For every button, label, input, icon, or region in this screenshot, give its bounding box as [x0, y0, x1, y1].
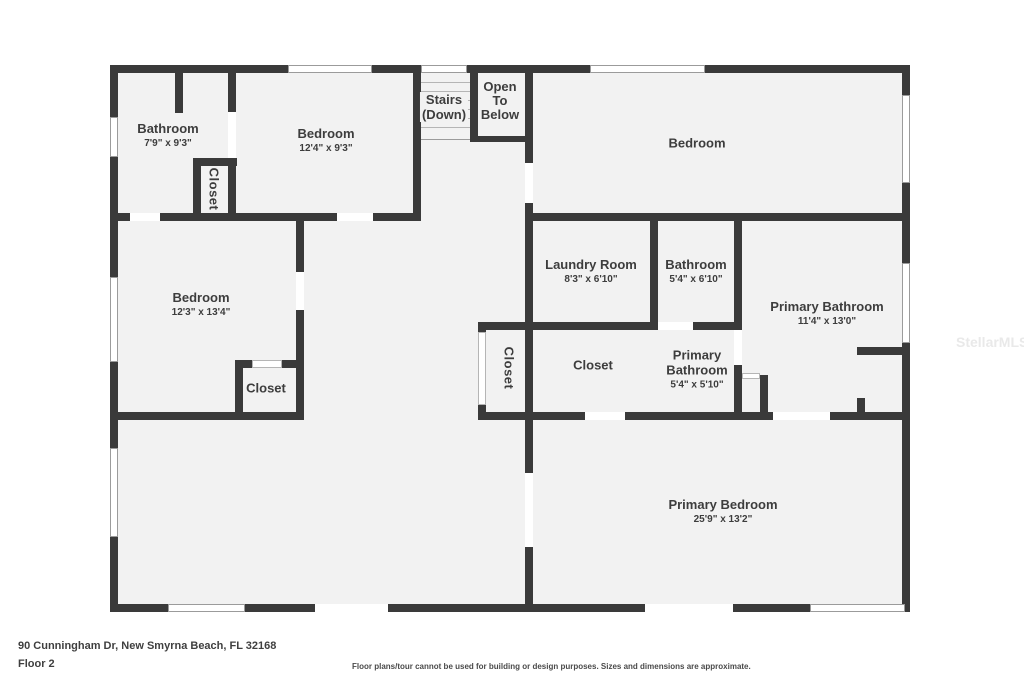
- room-dims: 12'4" x 9'3": [297, 141, 354, 156]
- window: [902, 95, 910, 183]
- room-label-closet-center-vertical: Closet: [502, 347, 517, 390]
- wall: [413, 65, 421, 221]
- door-opening: [130, 213, 160, 221]
- room-label-bedroom-middle-left: Bedroom 12'3" x 13'4": [172, 290, 231, 320]
- room-label-primary-bathroom-small: Primary Bathroom 5'4" x 5'10": [666, 348, 727, 393]
- wall: [470, 65, 478, 142]
- room-label-stairs: Stairs (Down): [420, 92, 468, 122]
- room-name-line2: Bathroom: [666, 363, 727, 378]
- stair-tread: [421, 127, 470, 128]
- door-opening: [228, 112, 236, 158]
- wall: [235, 360, 243, 420]
- door-opening: [658, 322, 693, 330]
- room-dims: 5'4" x 5'10": [666, 378, 727, 393]
- window: [590, 65, 705, 73]
- wall: [857, 347, 910, 355]
- room-label-closet-center: Closet: [573, 358, 613, 373]
- window: [110, 277, 118, 362]
- stair-edge: [421, 139, 470, 140]
- wall: [734, 221, 742, 330]
- floorplan-page: Bathroom 7'9" x 9'3" Closet Bedroom 12'4…: [0, 0, 1024, 682]
- door-opening: [296, 272, 304, 310]
- room-dims: 25'9" x 13'2": [668, 512, 777, 527]
- room-name-line1: Primary: [666, 348, 727, 363]
- open-label-line2: To: [481, 94, 519, 108]
- room-label-primary-bathroom: Primary Bathroom 11'4" x 13'0": [770, 299, 883, 329]
- room-label-closet-middle-left: Closet: [246, 381, 286, 396]
- room-name: Closet: [502, 347, 517, 390]
- door-opening: [525, 473, 533, 547]
- wall: [693, 322, 742, 330]
- room-dims: 11'4" x 13'0": [770, 314, 883, 329]
- room-dims: 12'3" x 13'4": [172, 305, 231, 320]
- stairs-label-line2: (Down): [422, 107, 466, 122]
- wall: [193, 158, 201, 213]
- room-name: Primary Bathroom: [770, 299, 883, 314]
- wall: [830, 412, 910, 420]
- wall: [235, 360, 252, 368]
- room-label-laundry-room: Laundry Room 8'3" x 6'10": [545, 257, 637, 287]
- door-opening: [525, 163, 533, 203]
- room-dims: 8'3" x 6'10": [545, 272, 637, 287]
- wall: [228, 158, 236, 213]
- room-name: Bathroom: [665, 257, 726, 272]
- wall: [470, 136, 533, 142]
- room-dims: 7'9" x 9'3": [137, 136, 198, 151]
- wall: [228, 65, 236, 112]
- wall: [478, 322, 658, 330]
- wall: [110, 213, 130, 221]
- door-opening: [337, 213, 373, 221]
- wall: [175, 65, 183, 113]
- wall: [525, 65, 533, 163]
- room-label-bedroom-top-left: Bedroom 12'4" x 9'3": [297, 126, 354, 156]
- room-name: Bathroom: [137, 121, 198, 136]
- window: [902, 263, 910, 343]
- wall: [650, 221, 658, 322]
- room-dims: 5'4" x 6'10": [665, 272, 726, 287]
- room-name: Bedroom: [172, 290, 231, 305]
- room-label-primary-bedroom: Primary Bedroom 25'9" x 13'2": [668, 497, 777, 527]
- stairs-label-line1: Stairs: [422, 92, 466, 107]
- wall: [160, 213, 337, 221]
- open-label-line1: Open: [481, 80, 519, 94]
- wall: [373, 213, 421, 221]
- room-label-bedroom-top-right: Bedroom: [668, 136, 725, 151]
- wall: [296, 213, 304, 272]
- door-opening: [315, 604, 388, 612]
- wall: [625, 412, 773, 420]
- door-opening: [478, 332, 486, 405]
- door-opening: [252, 360, 282, 368]
- door-opening: [734, 330, 742, 365]
- wall: [193, 158, 237, 166]
- door-opening: [645, 604, 733, 612]
- stair-tread: [421, 82, 470, 83]
- room-name: Closet: [207, 168, 222, 211]
- window: [110, 117, 118, 157]
- window: [421, 65, 467, 73]
- window: [168, 604, 245, 612]
- room-label-open-to-below: Open To Below: [481, 80, 519, 122]
- room-label-closet-top-left: Closet: [207, 168, 222, 211]
- wall: [478, 412, 585, 420]
- room-name: Closet: [246, 381, 286, 396]
- wall: [525, 213, 910, 221]
- room-name: Bedroom: [668, 136, 725, 151]
- room-name: Closet: [573, 358, 613, 373]
- window: [288, 65, 372, 73]
- stellar-mls-watermark: StellarMLS: [956, 334, 1024, 350]
- wall: [282, 360, 304, 368]
- property-address: 90 Cunningham Dr, New Smyrna Beach, FL 3…: [18, 640, 276, 652]
- room-label-bathroom-top-left: Bathroom 7'9" x 9'3": [137, 121, 198, 151]
- window: [110, 448, 118, 537]
- door-opening: [742, 373, 760, 379]
- window: [810, 604, 905, 612]
- floor-label: Floor 2: [18, 658, 55, 670]
- open-label-line3: Below: [481, 108, 519, 122]
- room-label-bathroom-middle: Bathroom 5'4" x 6'10": [665, 257, 726, 287]
- door-opening: [585, 412, 625, 420]
- room-name: Bedroom: [297, 126, 354, 141]
- wall: [525, 203, 533, 473]
- room-name: Primary Bedroom: [668, 497, 777, 512]
- floorplan-canvas: Bathroom 7'9" x 9'3" Closet Bedroom 12'4…: [110, 65, 910, 612]
- disclaimer-text: Floor plans/tour cannot be used for buil…: [352, 662, 751, 671]
- wall: [110, 412, 304, 420]
- door-opening: [773, 412, 830, 420]
- wall: [525, 547, 533, 612]
- room-name: Laundry Room: [545, 257, 637, 272]
